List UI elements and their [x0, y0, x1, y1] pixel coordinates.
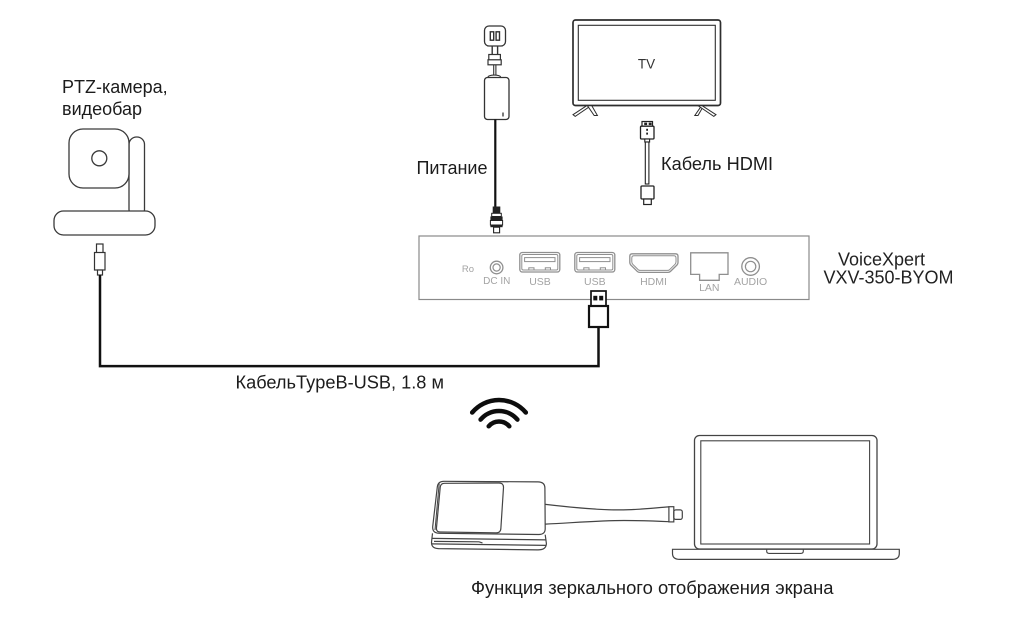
svg-text:LAN: LAN: [699, 282, 719, 294]
svg-text:USB: USB: [584, 276, 606, 288]
svg-text:DC IN: DC IN: [483, 276, 510, 287]
svg-text:Функция зеркального отображени: Функция зеркального отображения экрана: [471, 577, 834, 598]
svg-text:PTZ-камера,: PTZ-камера,: [62, 77, 168, 97]
svg-text:HDMI: HDMI: [640, 276, 667, 288]
svg-text:Питание: Питание: [416, 158, 487, 178]
svg-text:КабельTypeB-USB, 1.8 м: КабельTypeB-USB, 1.8 м: [236, 373, 444, 393]
svg-text:AUDIO: AUDIO: [734, 276, 767, 288]
svg-text:VoiceXpert: VoiceXpert: [838, 250, 925, 270]
svg-text:VXV-350-BYOM: VXV-350-BYOM: [823, 268, 953, 288]
svg-text:Ro: Ro: [462, 264, 474, 275]
svg-text:Кабель HDMI: Кабель HDMI: [661, 154, 773, 174]
svg-text:TV: TV: [638, 57, 655, 72]
svg-text:видеобар: видеобар: [62, 99, 142, 119]
svg-text:USB: USB: [529, 276, 551, 288]
